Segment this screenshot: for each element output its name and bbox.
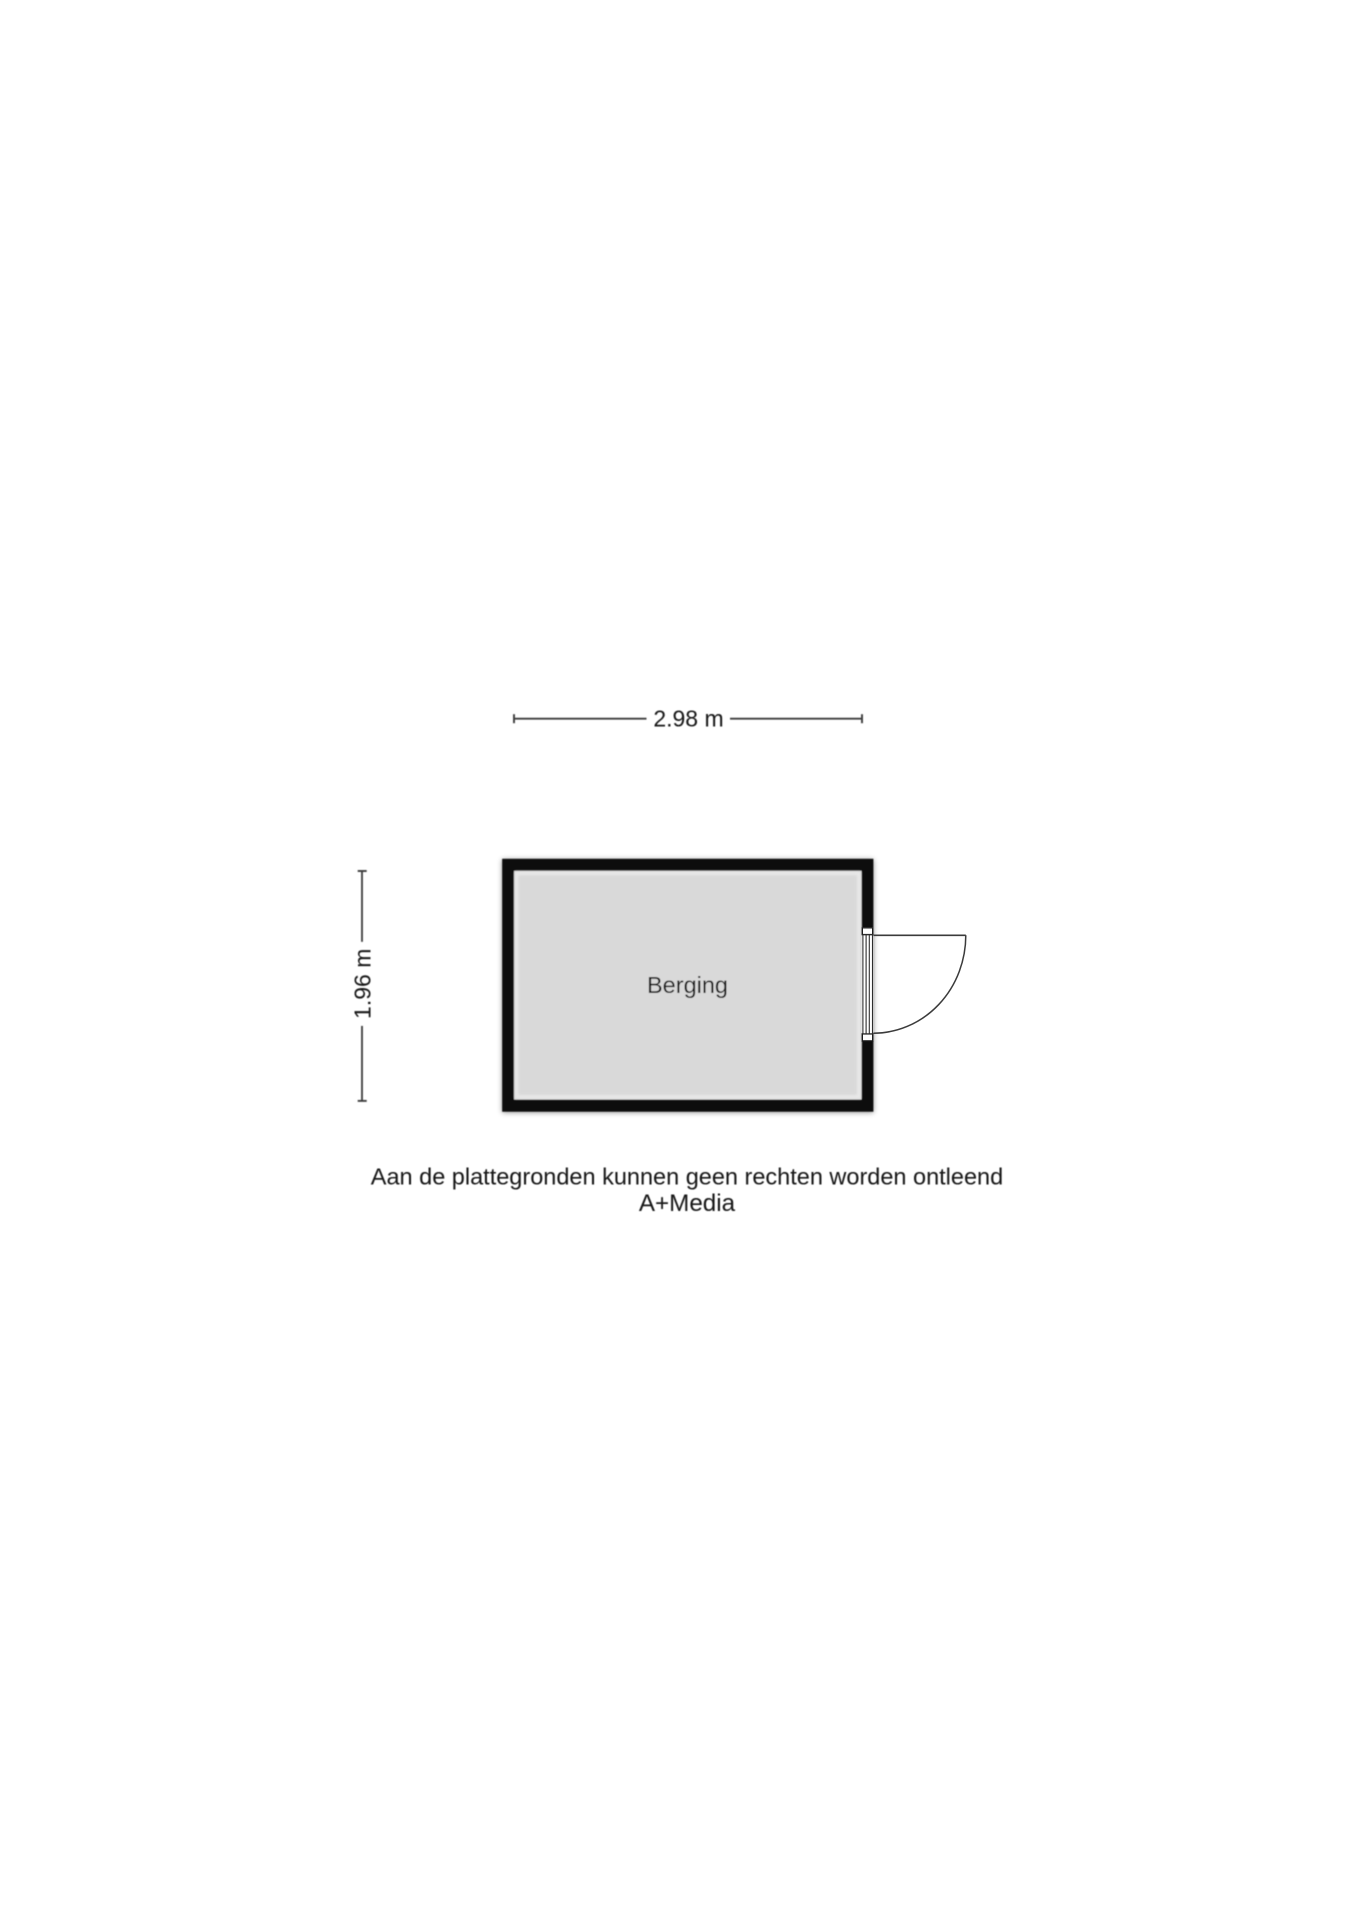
- svg-text:1.96 m: 1.96 m: [350, 949, 376, 1019]
- svg-text:A+Media: A+Media: [639, 1190, 736, 1217]
- svg-text:Berging: Berging: [647, 972, 728, 998]
- svg-text:Aan de plattegronden kunnen ge: Aan de plattegronden kunnen geen rechten…: [371, 1164, 1003, 1190]
- svg-text:2.98 m: 2.98 m: [653, 706, 723, 732]
